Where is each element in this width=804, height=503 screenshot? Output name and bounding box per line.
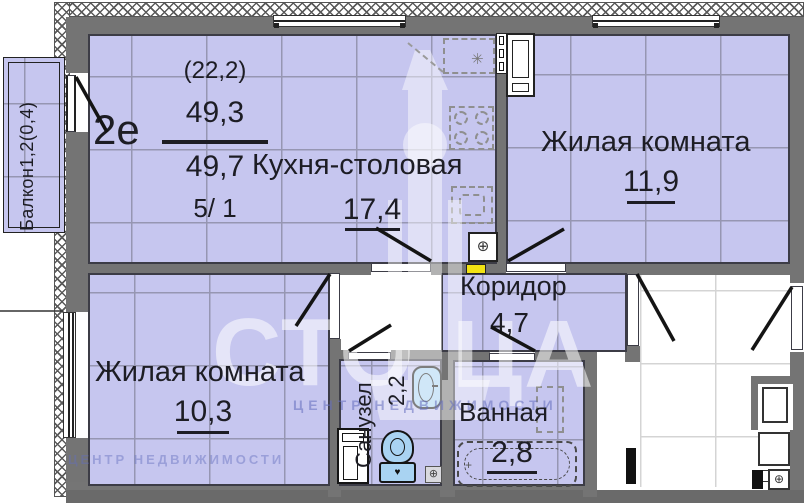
wall-bottom-outer (66, 490, 804, 503)
balcony: Балкон1,2(0,4) (3, 57, 65, 233)
bathroom-area-underline (487, 471, 537, 474)
entry-vestibule (341, 275, 441, 350)
living2-area: 10,3 (163, 395, 243, 429)
living2-area-underline (177, 431, 229, 434)
asterisk-icon: ✳ (471, 50, 484, 68)
toilet-icon (381, 430, 414, 464)
wall-left-upper (66, 17, 90, 73)
drain-symbol: ⊕ (429, 468, 438, 480)
stat-living-area: 49,3 (155, 96, 275, 130)
window-living1-top (592, 15, 720, 27)
balcony-door-jamb (66, 75, 76, 132)
vent-duct-icon: ⊕ (468, 232, 498, 262)
living1-area-underline (627, 201, 675, 204)
shaft-vent-icon: ⊕ (768, 469, 790, 490)
hall-door-jamb-block (626, 448, 636, 484)
wc-label: Санузел (352, 356, 375, 468)
corridor-area: 4,7 (490, 308, 529, 337)
apartment-code: 2е (93, 108, 140, 152)
balcony-label: Балкон1,2(0,4) (18, 61, 37, 231)
floor-drain-icon: ⊕ (425, 466, 442, 483)
wall-right-upper (790, 17, 804, 283)
corridor-label: Коридор (460, 272, 567, 300)
living1-area: 11,9 (611, 165, 691, 199)
kitchen-cabinet-dashed (443, 38, 495, 74)
stat-kitchen-living-sum: (22,2) (155, 57, 275, 85)
shaft-meter-box (758, 432, 790, 466)
stove-icon (449, 106, 494, 150)
stat-fraction-line (162, 140, 268, 144)
kitchen-area-underline (345, 228, 400, 231)
entry-door-jamb (627, 274, 639, 346)
living2-door-jamb (329, 273, 340, 339)
window-kitchen-top (273, 15, 406, 27)
shaft-black-block (752, 470, 763, 489)
bathroom-door-jamb (489, 353, 535, 361)
living1-label: Жилая комната (541, 127, 750, 157)
washbasin-icon (412, 366, 442, 409)
toilet-tank-icon: ♥ (379, 462, 416, 483)
bathroom-area: 2,8 (472, 436, 552, 470)
neighbor-door-jamb (791, 286, 803, 350)
tub-plus-symbol: + (465, 458, 472, 472)
living2-label: Жилая комната (95, 357, 304, 387)
stat-floor: 5/ 1 (155, 193, 275, 224)
shaft-vent-symbol: ⊕ (774, 472, 784, 486)
wall-left-mid (66, 132, 90, 312)
bathroom-label: Ванная (459, 399, 548, 426)
kitchen-sink-icon (451, 186, 493, 224)
window-living2-left (63, 312, 76, 438)
wardrobe-icon (506, 33, 535, 97)
kitchen-door-jamb (371, 263, 431, 272)
kitchen-label: Кухня-столовая (252, 150, 463, 180)
floor-plan: Балкон1,2(0,4) ✳ ⊕ (0, 0, 804, 503)
utility-shaft (751, 376, 793, 430)
wall-bath-right (583, 350, 597, 497)
wc-area: 2,2 (385, 356, 408, 406)
vent-symbol: ⊕ (477, 238, 490, 255)
kitchen-area: 17,4 (332, 193, 412, 227)
heart-symbol: ♥ (395, 467, 401, 478)
